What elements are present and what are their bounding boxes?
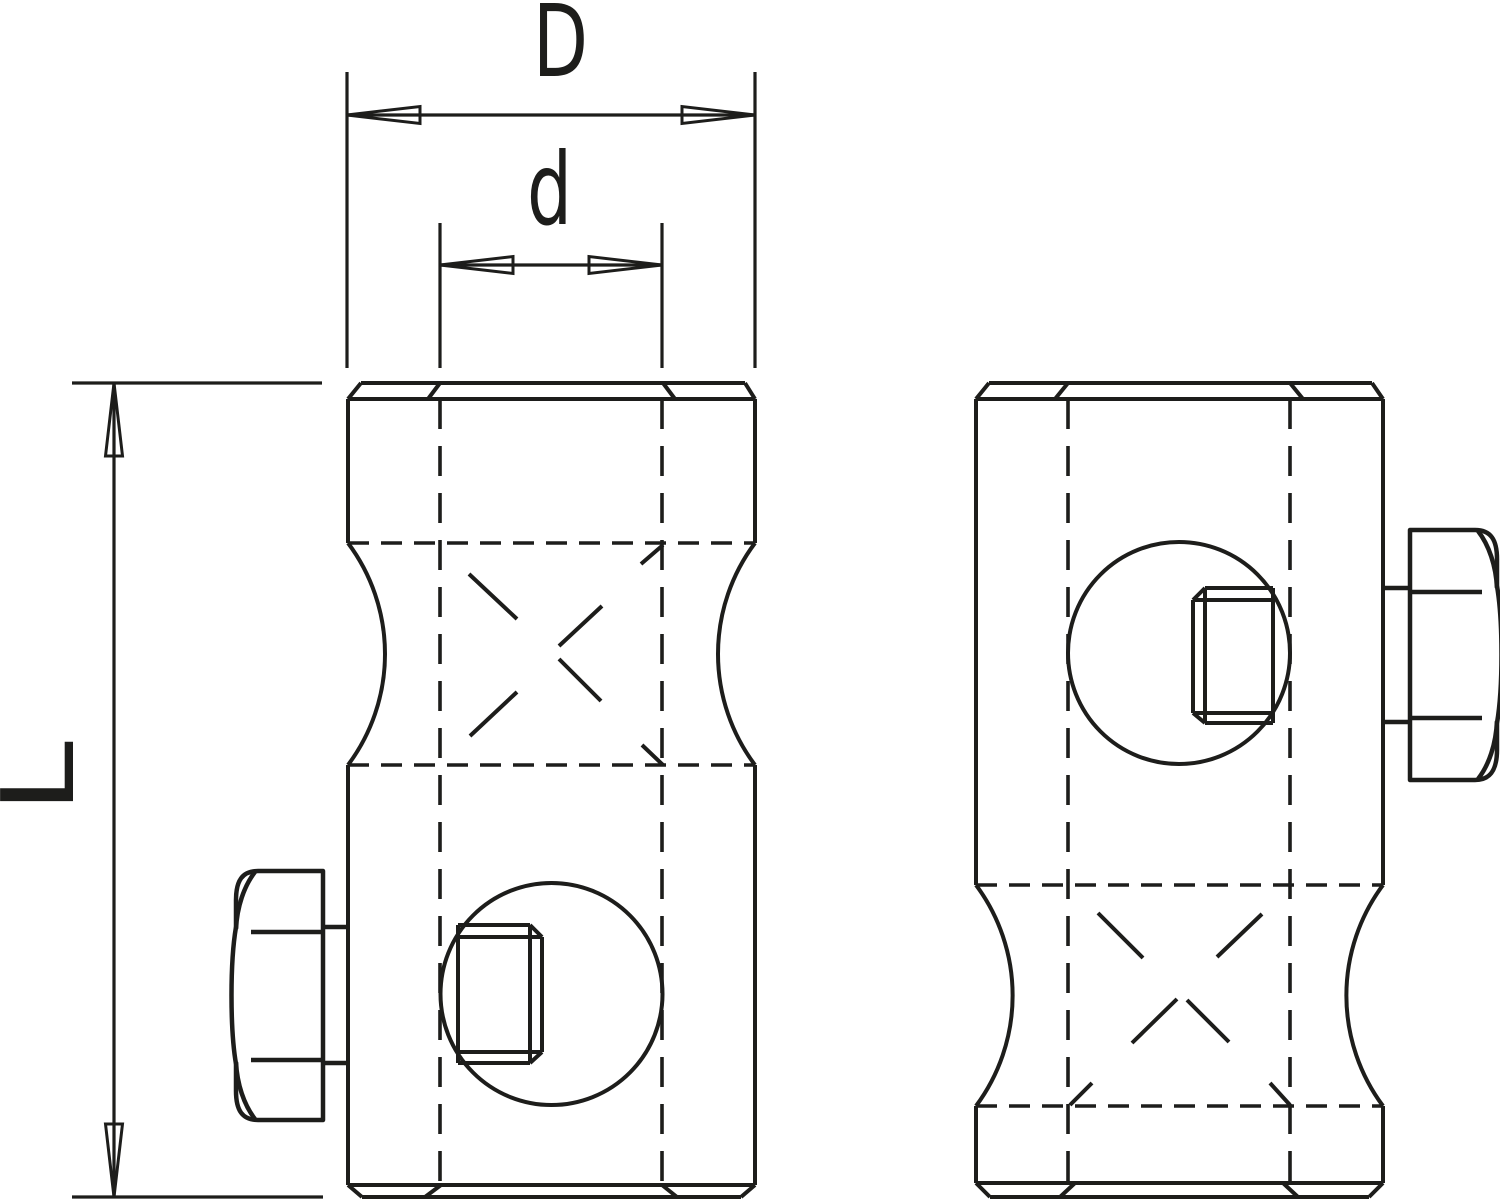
dimension-label-L: L (0, 741, 97, 814)
dimension-label-D: D (533, 0, 588, 100)
dimension-label-d: d (527, 131, 572, 248)
technical-drawing-page: D d L (0, 0, 1500, 1201)
technical-drawing-canvas: D d L (0, 0, 1500, 1201)
